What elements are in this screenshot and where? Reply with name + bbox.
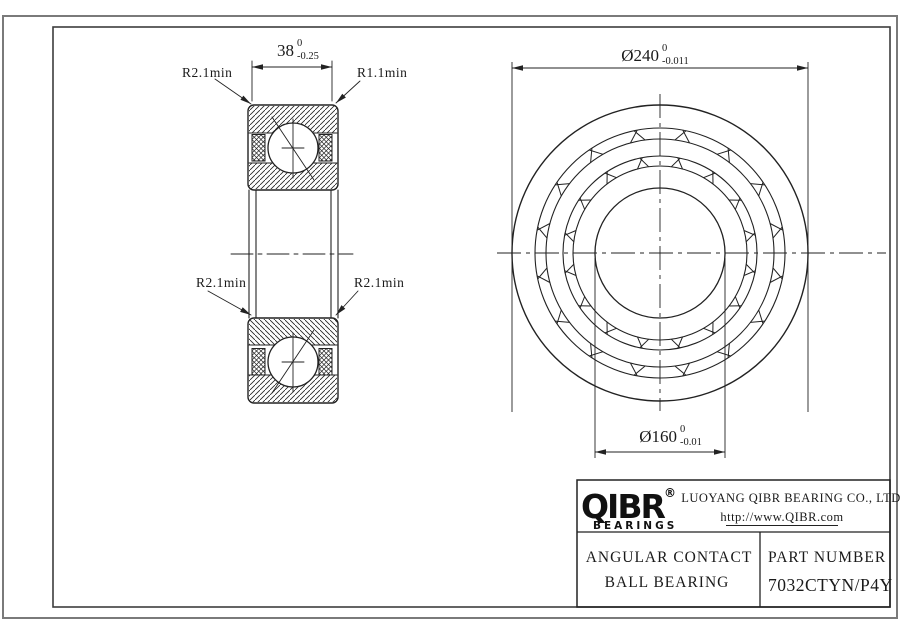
cage-section-lower-right bbox=[319, 349, 332, 376]
logo-subtext: BEARINGS bbox=[593, 520, 677, 532]
company-website: http://www.QIBR.com bbox=[720, 510, 843, 524]
dim-outer-tol-upper: 0 bbox=[662, 43, 667, 54]
title-block: QIBR ® BEARINGS LUOYANG QIBR BEARING CO.… bbox=[577, 480, 900, 607]
dim-width-tol-lower: -0.25 bbox=[297, 51, 319, 62]
dim-width bbox=[252, 61, 332, 101]
bearing-drawing-canvas: 38 0 -0.25 R2.1min R1.1min R2.1min R2.1m… bbox=[0, 0, 900, 636]
dim-bore-tol-upper: 0 bbox=[680, 424, 685, 435]
section-view: 38 0 -0.25 R2.1min R1.1min R2.1min R2.1m… bbox=[182, 38, 407, 403]
dim-width-tol-upper: 0 bbox=[297, 38, 302, 49]
dim-bore-value: Ø160 bbox=[639, 427, 677, 446]
label-radius-top-right: R1.1min bbox=[357, 65, 407, 80]
registered-trademark-icon: ® bbox=[664, 486, 676, 500]
dim-arrow bbox=[252, 64, 263, 70]
section-upper bbox=[248, 105, 338, 190]
dim-arrow bbox=[714, 449, 725, 455]
dim-width-value: 38 bbox=[277, 41, 294, 60]
product-name-line2: BALL BEARING bbox=[605, 574, 730, 591]
company-name: LUOYANG QIBR BEARING CO., LTD bbox=[681, 491, 900, 505]
dim-arrow bbox=[321, 64, 332, 70]
outer-frame bbox=[3, 16, 897, 618]
product-name-line1: ANGULAR CONTACT bbox=[586, 549, 753, 566]
section-lower bbox=[248, 318, 338, 403]
dim-arrow bbox=[512, 65, 523, 71]
dim-arrow bbox=[595, 449, 606, 455]
label-radius-top-left: R2.1min bbox=[182, 65, 232, 80]
label-radius-mid-right: R2.1min bbox=[354, 275, 404, 290]
drawing-sheet: 38 0 -0.25 R2.1min R1.1min R2.1min R2.1m… bbox=[0, 0, 900, 636]
leader-arrow bbox=[240, 96, 251, 104]
dim-outer-tol-lower: -0.011 bbox=[662, 56, 689, 67]
cage-section-lower-left bbox=[252, 349, 265, 376]
cage-section-upper-right bbox=[319, 135, 332, 162]
front-view: Ø240 0 -0.011 Ø160 0 -0.01 bbox=[497, 43, 886, 458]
label-radius-mid-left: R2.1min bbox=[196, 275, 246, 290]
part-number-label: PART NUMBER bbox=[768, 549, 886, 566]
company-logo: QIBR ® BEARINGS bbox=[581, 486, 677, 532]
dim-outer-value: Ø240 bbox=[621, 46, 659, 65]
cage-section-upper-left bbox=[252, 135, 265, 162]
dim-arrow bbox=[797, 65, 808, 71]
dim-bore-tol-lower: -0.01 bbox=[680, 437, 702, 448]
part-number-value: 7032CTYN/P4Y bbox=[768, 575, 893, 595]
